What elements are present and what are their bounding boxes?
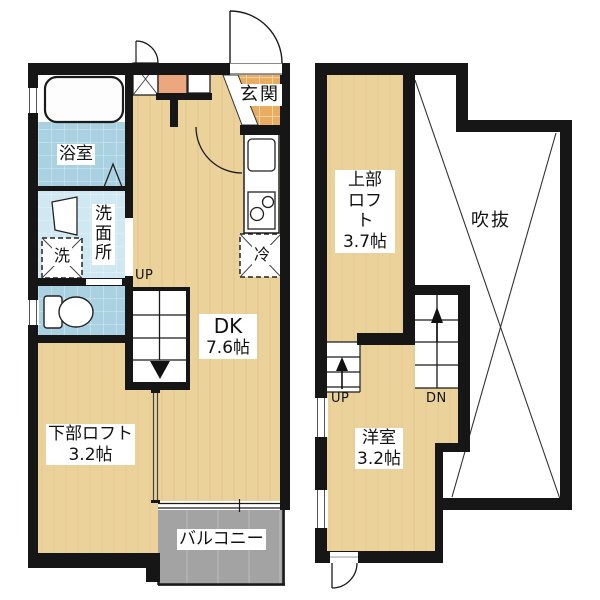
stairs-up-label-f2: UP xyxy=(331,391,349,407)
western-room-grain-c xyxy=(411,452,437,558)
lower-loft-label: 下部ロフト 3.2帖 xyxy=(46,424,135,465)
upper-loft-size: 3.7帖 xyxy=(337,232,393,253)
entrance-door-arc xyxy=(230,11,282,63)
stove-burner-1 xyxy=(251,208,264,221)
western-room-name: 洋室 xyxy=(357,428,401,449)
bathtub xyxy=(45,77,123,122)
stairs-up-label-f1: UP xyxy=(135,268,153,284)
storage-box xyxy=(188,72,210,93)
toilet-opening xyxy=(86,279,122,285)
void-label: 吹抜 xyxy=(471,210,511,232)
lower-loft-name: 下部ロフト xyxy=(48,424,133,445)
entrance-label: 玄関 xyxy=(238,84,282,106)
dk-label: DK 7.6帖 xyxy=(199,314,257,359)
divider-tick-bottom xyxy=(151,500,160,503)
balcony-label: バルコニー xyxy=(177,529,266,550)
western-room-label: 洋室 3.2帖 xyxy=(355,428,403,469)
second-floor-plan xyxy=(314,63,572,588)
lower-loft-size: 3.2帖 xyxy=(48,445,133,466)
toilet xyxy=(44,296,93,328)
washbasin xyxy=(52,197,77,235)
balcony-window xyxy=(158,501,283,510)
bathroom-window xyxy=(27,88,39,113)
kitchen-sink xyxy=(248,139,275,171)
refrigerator-label: 冷 xyxy=(252,245,272,265)
entrance-opening xyxy=(230,64,282,75)
divider-tick-top xyxy=(151,390,160,393)
floor-plan-canvas xyxy=(0,0,600,600)
utility-door-arc xyxy=(136,41,158,63)
bathroom-label: 浴室 xyxy=(57,144,95,165)
dk-name: DK xyxy=(201,314,255,338)
washer-label: 洗 xyxy=(52,246,72,266)
washroom-label: 洗面所 xyxy=(92,204,115,265)
upper-loft-name: 上部ロフト xyxy=(346,170,384,232)
western-room-size: 3.2帖 xyxy=(357,449,401,470)
toilet-window xyxy=(27,300,39,325)
room-window-upper xyxy=(314,398,328,437)
washroom-opening xyxy=(125,218,133,276)
dk-size: 7.6帖 xyxy=(201,338,255,359)
stove-burner-2 xyxy=(263,197,274,208)
upper-loft-label: 上部ロフト 3.7帖 xyxy=(335,170,395,253)
stairs-down-label: DN xyxy=(426,391,447,407)
shoe-cabinet xyxy=(158,72,187,95)
room-door-arc xyxy=(332,563,357,588)
floor-plan: 浴室 洗面所 洗 玄関 DK 7.6帖 下部ロフト 3.2帖 バルコニー 冷 U… xyxy=(0,0,600,600)
room-window-lower xyxy=(314,490,328,528)
